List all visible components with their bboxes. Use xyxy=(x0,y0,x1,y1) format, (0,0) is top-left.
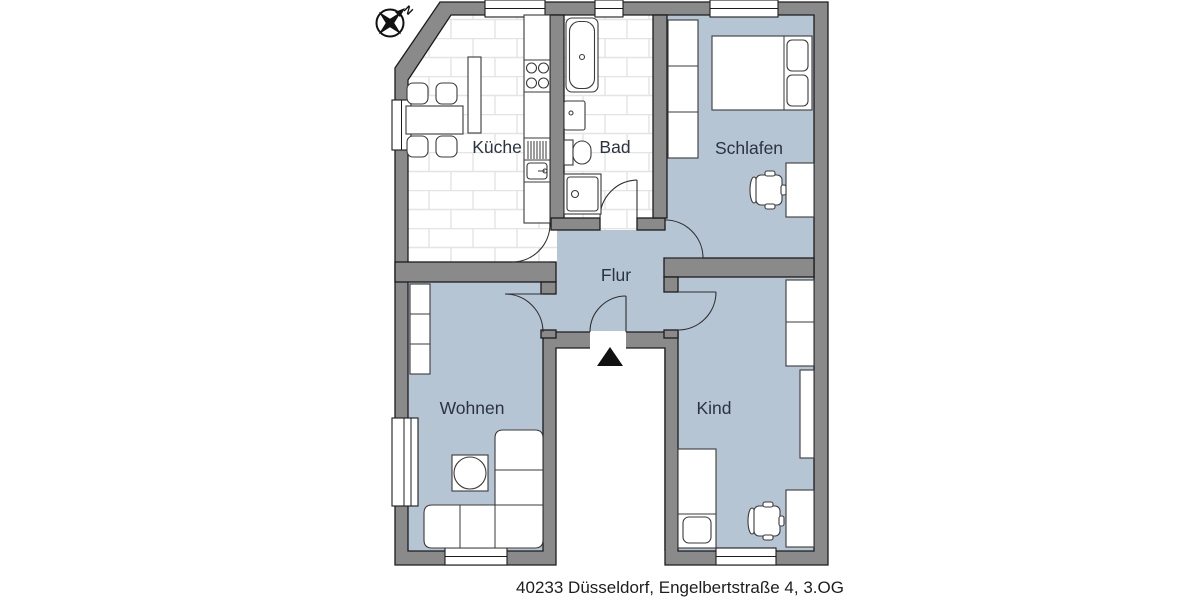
entrance-arrow-icon xyxy=(597,347,623,366)
window-kind-bottom xyxy=(716,548,776,565)
dishwasher-hatch-icon xyxy=(528,141,546,159)
wall-kueche-wohnen xyxy=(395,262,556,282)
pillow xyxy=(787,75,808,106)
bathtub-icon xyxy=(566,18,598,92)
washbasin-icon xyxy=(564,101,585,130)
wall-flur-kind-stub-top xyxy=(664,277,678,292)
desk xyxy=(786,163,814,217)
dining-chair xyxy=(436,136,457,157)
dining-chair xyxy=(407,136,428,157)
dining-table xyxy=(406,106,463,134)
floor-plan-page: Küche Bad Schlafen Flur Wohnen Kind N 40… xyxy=(0,0,1200,600)
floor-plan: Küche Bad Schlafen Flur Wohnen Kind N 40… xyxy=(0,0,1200,600)
wall-schlafen-kind xyxy=(664,258,814,277)
wall-bad-schlafen xyxy=(653,15,667,218)
room-label-kueche: Küche xyxy=(472,137,522,157)
wall-bad-flur-left xyxy=(551,218,600,230)
double-bed xyxy=(712,36,812,110)
room-label-kind: Kind xyxy=(696,398,731,418)
address-text: 40233 Düsseldorf, Engelbertstraße 4, 3.O… xyxy=(516,578,844,597)
window-wohnen-left xyxy=(392,418,418,506)
kitchen-cabinet xyxy=(468,57,481,133)
pillow xyxy=(787,40,808,71)
entrance-opening xyxy=(590,331,626,349)
window-schlafen-top xyxy=(710,0,778,17)
kitchen-sink-icon xyxy=(527,163,547,179)
toilet-icon xyxy=(564,140,591,165)
coffee-table-icon xyxy=(452,455,488,491)
wall-flur-wohnen-stub-top xyxy=(541,282,556,294)
wardrobe xyxy=(668,20,698,158)
window-wohnen-bottom xyxy=(445,548,507,565)
window-bad-top xyxy=(595,0,623,17)
pillow xyxy=(683,517,711,543)
room-label-wohnen: Wohnen xyxy=(440,398,505,418)
wall-flur-kind-stub-bottom xyxy=(664,330,678,338)
desk xyxy=(786,490,814,547)
dining-chair xyxy=(436,83,457,104)
single-bed xyxy=(678,449,716,548)
entrance xyxy=(590,331,626,366)
sideboard xyxy=(410,284,430,374)
shower-icon xyxy=(564,174,601,214)
wall-bad-flur-right xyxy=(637,218,665,230)
compass-icon: N xyxy=(367,0,415,45)
dining-chair xyxy=(407,83,428,104)
room-label-schlafen: Schlafen xyxy=(715,138,783,158)
wall-kueche-bad xyxy=(550,15,564,225)
room-label-bad: Bad xyxy=(599,137,630,157)
kitchen-counter xyxy=(524,15,550,223)
room-label-flur: Flur xyxy=(601,265,631,285)
north-label: N xyxy=(401,4,415,18)
